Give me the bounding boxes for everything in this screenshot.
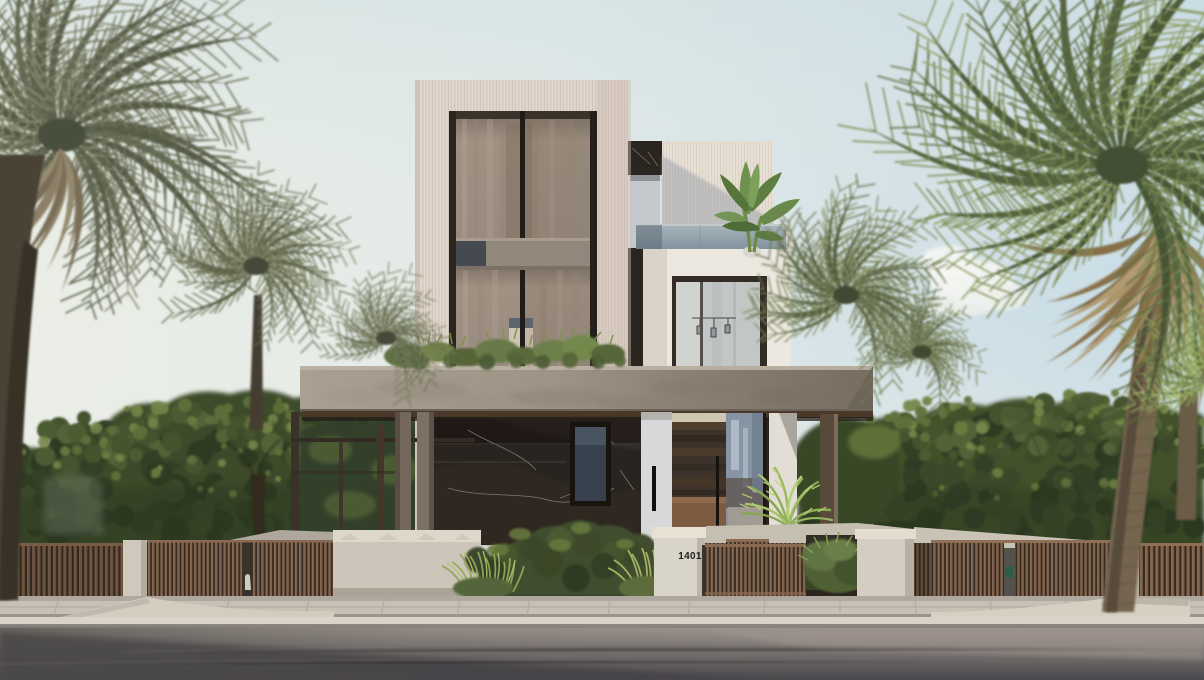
svg-text:1401: 1401 bbox=[678, 551, 702, 562]
